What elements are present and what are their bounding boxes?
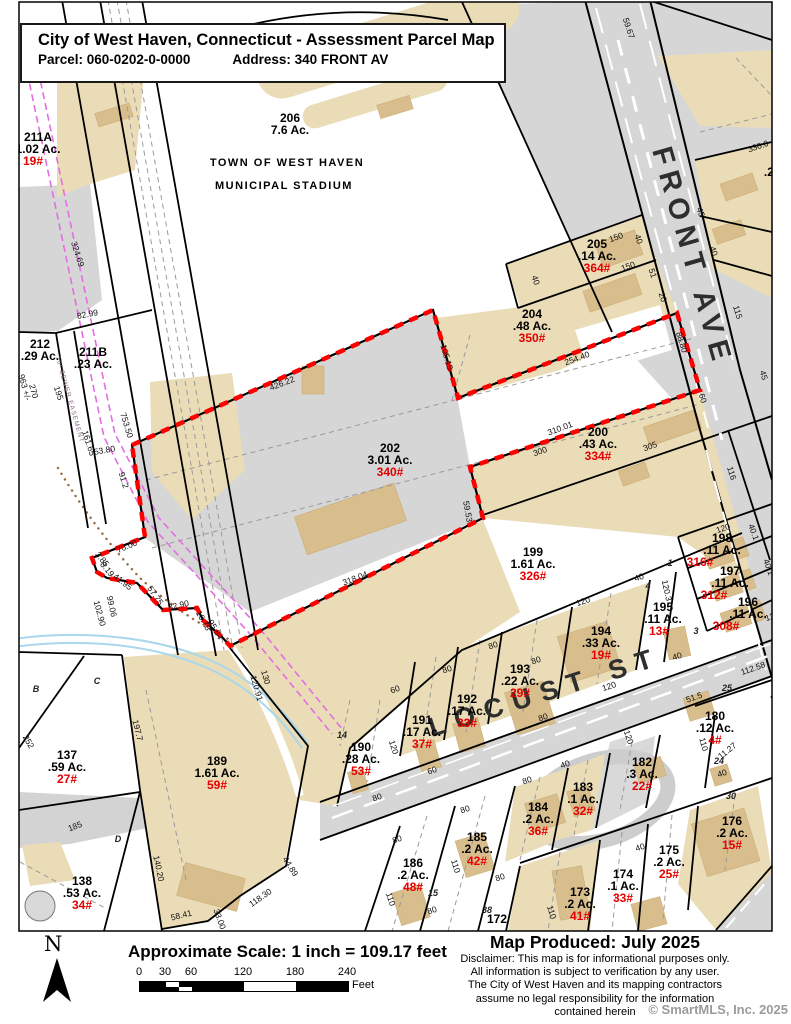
lot-number: 3 [693, 626, 698, 636]
parcel-address-number: 27# [57, 772, 77, 786]
parcel-address-number: 22# [632, 779, 652, 793]
lot-number: B [33, 684, 40, 694]
parcel-address-number: 35# [773, 177, 791, 191]
scale-tick: 0 [136, 966, 142, 978]
parcel-address-line: Parcel: 060-0202-0-0000Address: 340 FRON… [38, 52, 504, 67]
parcel-address-number: 364# [584, 261, 611, 275]
parcel-address-number: 326# [520, 569, 547, 583]
parcel-address-number: 13# [649, 624, 669, 638]
map-title: City of West Haven, Connecticut - Assess… [38, 31, 504, 50]
scale-tick: 120 [234, 966, 252, 978]
parcel-address-number: 59# [207, 778, 227, 792]
parcel-address-number: 350# [519, 331, 546, 345]
parcel-address-number: 300# [776, 699, 791, 713]
parcel-address-number: 316# [687, 555, 714, 569]
parcel-address-number: 3# [780, 221, 791, 235]
parcel-id: Parcel: 060-0202-0-0000 [38, 52, 190, 67]
parcel-address-number: 33# [613, 891, 633, 905]
scale-tick: 180 [286, 966, 304, 978]
map-content: FRONT AVELOCUST ST TOWN OF WEST HAVENMUN… [0, 0, 791, 932]
parcel-address-number: 308# [713, 619, 740, 633]
lot-number: 14 [337, 730, 347, 740]
parcel-address-number: 53# [351, 764, 371, 778]
lot-number: D [115, 834, 122, 844]
parcel-acreage: .22 Ac. [770, 687, 791, 701]
parcel-address-number: 48# [403, 880, 423, 894]
disclaimer-line: Disclaimer: This map is for informationa… [430, 953, 760, 966]
scale-tick: 30 [159, 966, 171, 978]
north-arrow-icon [35, 956, 79, 1006]
parcel-acreage: .23 Ac. [74, 357, 112, 371]
disclaimer-line: All information is subject to verificati… [430, 966, 760, 979]
map-produced-date: Map Produced: July 2025 [430, 932, 760, 953]
lot-number: C [94, 676, 101, 686]
parcel-address-number: 312# [701, 588, 728, 602]
parcel-address-number: 340# [377, 465, 404, 479]
parcel-address-number: 34# [72, 898, 92, 912]
north-label: N [44, 932, 62, 956]
scale-bar [139, 981, 349, 992]
parcel-number: 18 [782, 675, 791, 689]
parcel-acreage: .23 Ac. [764, 165, 791, 179]
parcel-address-number: 42# [467, 854, 487, 868]
stadium-label: TOWN OF WEST HAVEN [210, 157, 364, 169]
scale-label: Approximate Scale: 1 inch = 109.17 feet [128, 942, 447, 962]
parcel-address: Address: 340 FRONT AV [232, 52, 388, 67]
disclaimer-line: The City of West Haven and its mapping c… [430, 979, 760, 992]
lot-number: 30 [726, 791, 736, 801]
lot-number: 1 [667, 558, 672, 568]
parcel-address-number: 41# [570, 909, 590, 923]
lot-number: 25 [721, 683, 733, 693]
parcel-address-number: 19# [23, 154, 43, 168]
parcel-address-number: 37# [412, 737, 432, 751]
parcel-address-number: 19# [591, 648, 611, 662]
lot-number: 24 [713, 756, 724, 766]
scale-tick: 60 [185, 966, 197, 978]
parcel-acreage: 7.6 Ac. [271, 123, 309, 137]
parcel-address-number: 15# [722, 838, 742, 852]
parcel-map-page: { "title_box": { "title": "City of West … [0, 0, 791, 1024]
parcel-address-number: 29# [510, 686, 530, 700]
parcel-map-canvas: FRONT AVELOCUST ST TOWN OF WEST HAVENMUN… [0, 0, 791, 932]
parcel-address-number: 334# [585, 449, 612, 463]
title-box: City of West Haven, Connecticut - Assess… [20, 23, 506, 83]
parcel-address-number: 33# [457, 716, 477, 730]
parcel-acreage: .29 Ac. [21, 349, 59, 363]
parcel-acreage: .1 Ac. [771, 209, 791, 223]
parcel-address-number: 25# [659, 867, 679, 881]
scale-tick: 240 [338, 966, 356, 978]
lot-number: 4 [644, 581, 650, 591]
parcel-address-number: 4# [708, 733, 722, 747]
lot-number: 15 [428, 888, 439, 898]
parcel-address-number: 32# [573, 804, 593, 818]
parcel-number: 172 [487, 912, 507, 926]
stadium-label: MUNICIPAL STADIUM [215, 180, 353, 192]
copyright: © SmartMLS, Inc. 2025 [590, 1002, 788, 1017]
scale-unit: Feet [352, 979, 374, 991]
parcel-address-number: 36# [528, 824, 548, 838]
